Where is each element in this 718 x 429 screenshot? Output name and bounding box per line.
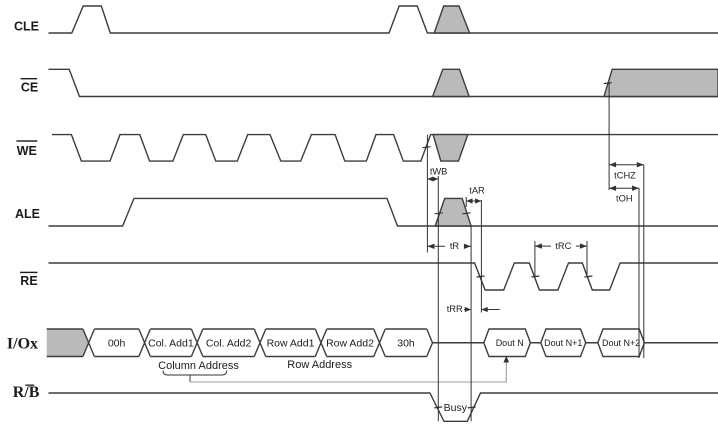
svg-text:tWB: tWB: [430, 166, 448, 176]
svg-text:tR: tR: [450, 241, 460, 251]
svg-text:RE: RE: [20, 274, 37, 288]
svg-text:Row Add1: Row Add1: [267, 338, 315, 350]
svg-text:I/Ox: I/Ox: [7, 335, 38, 352]
svg-text:WE: WE: [17, 144, 37, 158]
svg-text:tCHZ: tCHZ: [614, 171, 636, 181]
svg-text:Dout N+1: Dout N+1: [544, 338, 582, 348]
svg-text:tOH: tOH: [616, 194, 633, 204]
svg-text:Col. Add1: Col. Add1: [148, 338, 194, 350]
svg-text:Dout N: Dout N: [496, 338, 524, 348]
svg-text:Column Address: Column Address: [158, 360, 239, 372]
svg-text:tRC: tRC: [555, 241, 571, 251]
svg-text:Col. Add2: Col. Add2: [206, 338, 252, 350]
svg-text:tRR: tRR: [447, 304, 463, 314]
svg-text:00h: 00h: [108, 338, 126, 350]
svg-text:30h: 30h: [397, 338, 415, 350]
svg-text:R/B: R/B: [13, 384, 40, 401]
svg-text:ALE: ALE: [15, 207, 40, 221]
svg-text:Dout N+2: Dout N+2: [602, 338, 640, 348]
svg-text:Busy: Busy: [444, 402, 468, 414]
svg-text:Row Address: Row Address: [287, 359, 352, 371]
svg-text:Row Add2: Row Add2: [326, 338, 374, 350]
svg-text:CLE: CLE: [14, 20, 39, 34]
svg-text:CE: CE: [21, 80, 38, 94]
svg-text:tAR: tAR: [469, 185, 485, 195]
